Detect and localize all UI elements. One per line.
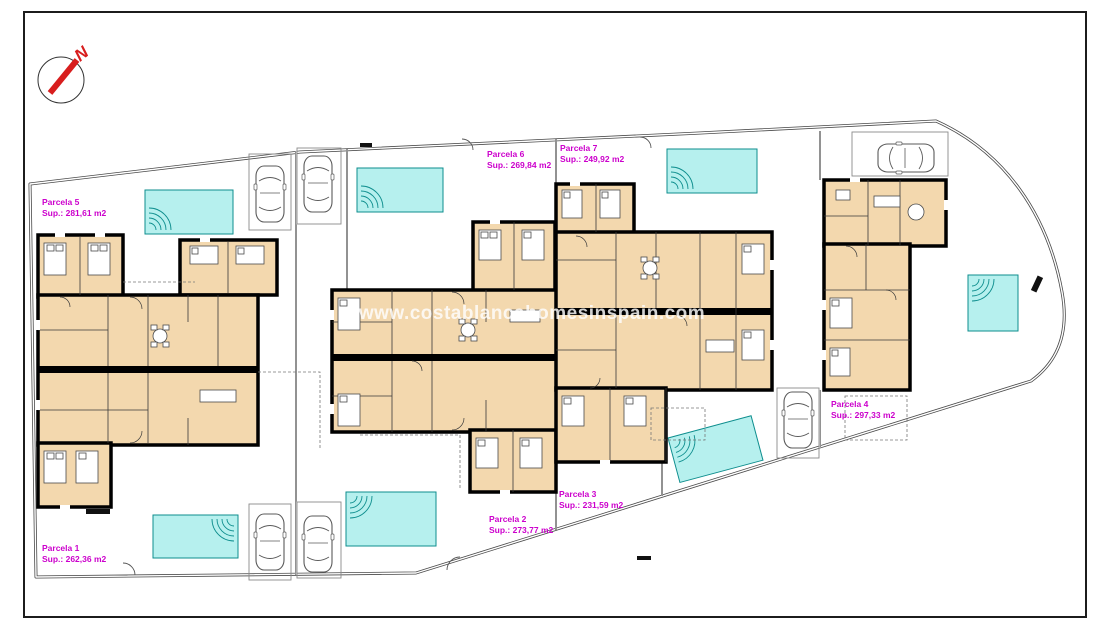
car-icon xyxy=(302,156,334,212)
parcel-label-4: Parcela 4 Sup.: 297,33 m2 xyxy=(831,399,896,420)
parcel-label-7: Parcela 7 Sup.: 249,92 m2 xyxy=(560,143,625,164)
svg-text:Parcela 5: Parcela 5 xyxy=(42,197,80,207)
parcel-label-2: Parcela 2 Sup.: 273,77 m2 xyxy=(489,514,554,535)
car-icon xyxy=(254,166,286,222)
compass-needle-icon xyxy=(50,60,77,93)
house-parcelas-6-2 xyxy=(330,220,558,494)
svg-text:Sup.: 297,33 m2: Sup.: 297,33 m2 xyxy=(831,410,896,420)
svg-text:Sup.: 269,84 m2: Sup.: 269,84 m2 xyxy=(487,160,552,170)
pool-parcela-5 xyxy=(145,190,233,234)
svg-text:Parcela 1: Parcela 1 xyxy=(42,543,80,553)
pool-parcela-7 xyxy=(667,149,757,193)
svg-text:Sup.: 249,92 m2: Sup.: 249,92 m2 xyxy=(560,154,625,164)
watermark-text: www.costablancahomesinspain.com xyxy=(358,303,705,324)
house-parcelas-5-1 xyxy=(36,233,277,509)
pool-parcela-4 xyxy=(968,275,1018,331)
pool-parcela-1 xyxy=(153,515,238,558)
svg-text:Parcela 2: Parcela 2 xyxy=(489,514,527,524)
svg-text:Parcela 3: Parcela 3 xyxy=(559,489,597,499)
svg-text:Parcela 6: Parcela 6 xyxy=(487,149,525,159)
parcel-label-3: Parcela 3 Sup.: 231,59 m2 xyxy=(559,489,624,510)
svg-text:Parcela 4: Parcela 4 xyxy=(831,399,869,409)
parcel-label-1: Parcela 1 Sup.: 262,36 m2 xyxy=(42,543,107,564)
svg-text:Sup.: 281,61 m2: Sup.: 281,61 m2 xyxy=(42,208,107,218)
svg-text:Sup.: 273,77 m2: Sup.: 273,77 m2 xyxy=(489,525,554,535)
parcel-label-6: Parcela 6 Sup.: 269,84 m2 xyxy=(487,149,552,170)
svg-text:Parcela 7: Parcela 7 xyxy=(560,143,598,153)
car-icon xyxy=(782,392,814,448)
pool-parcela-2 xyxy=(346,492,436,546)
plan-canvas: N xyxy=(0,0,1110,626)
svg-text:Sup.: 231,59 m2: Sup.: 231,59 m2 xyxy=(559,500,624,510)
site-plan-drawing: N xyxy=(0,0,1110,626)
pool-parcela-3 xyxy=(668,416,763,483)
north-compass: N xyxy=(38,42,93,103)
car-icon xyxy=(878,142,934,174)
car-icon xyxy=(254,514,286,570)
house-parcela-4 xyxy=(822,178,948,390)
car-icon xyxy=(302,516,334,572)
pool-parcela-6 xyxy=(357,168,443,212)
svg-text:Sup.: 262,36 m2: Sup.: 262,36 m2 xyxy=(42,554,107,564)
parcel-label-5: Parcela 5 Sup.: 281,61 m2 xyxy=(42,197,107,218)
